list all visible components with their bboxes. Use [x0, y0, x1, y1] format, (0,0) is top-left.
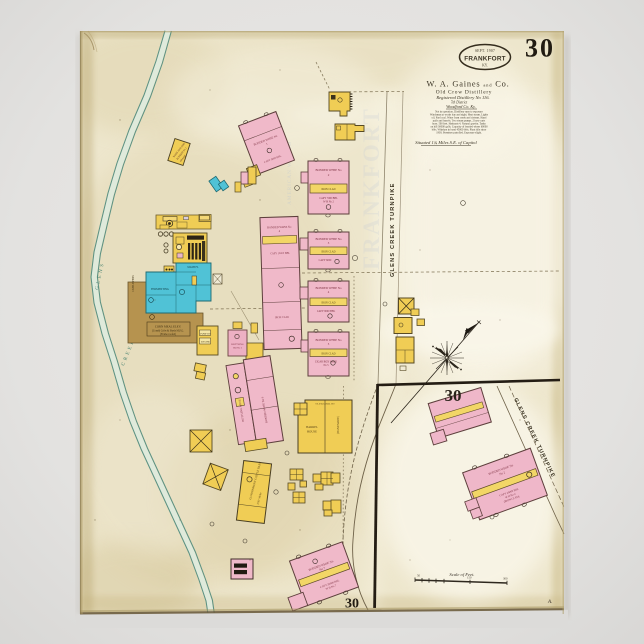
svg-text:50: 50	[417, 574, 421, 578]
svg-text:CAPY 8000 BBL: CAPY 8000 BBL	[317, 310, 336, 313]
svg-text:Registered Distillery No 116.: Registered Distillery No 116.	[435, 95, 489, 100]
svg-text:No 5: No 5	[323, 364, 329, 367]
svg-text:W H No 2: W H No 2	[323, 201, 334, 204]
svg-text:IRON CLAD: IRON CLAD	[321, 250, 335, 253]
svg-text:CORN MEAL ELEV.: CORN MEAL ELEV.	[155, 325, 182, 329]
svg-text:300: 300	[503, 577, 508, 581]
svg-text:A.: A.	[547, 600, 552, 605]
svg-text:CAPY 7000 BBL: CAPY 7000 BBL	[319, 197, 338, 200]
svg-text:(HAND MADE): (HAND MADE)	[337, 416, 340, 434]
svg-text:HOUSE: HOUSE	[307, 429, 317, 433]
svg-text:MASH FL: MASH FL	[187, 266, 199, 269]
svg-text:BONDED WHSE No: BONDED WHSE No	[315, 168, 342, 172]
svg-text:IRON CLAD: IRON CLAD	[321, 352, 335, 355]
svg-text:W. A. Gaines and Co.: W. A. Gaines and Co.	[426, 80, 509, 89]
svg-text:SEPT. 1907: SEPT. 1907	[475, 49, 495, 53]
svg-text:CAPY 6000: CAPY 6000	[319, 259, 332, 262]
svg-text:FERMENTING: FERMENTING	[151, 288, 169, 291]
svg-text:IRON CLAD: IRON CLAD	[321, 301, 335, 304]
svg-text:IRON CLAD: IRON CLAD	[275, 316, 289, 319]
svg-text:KY.: KY.	[482, 64, 488, 68]
svg-text:1903. Premises patrolled. Expo: 1903. Premises patrolled. Exposure sligh…	[436, 132, 482, 135]
svg-text:30: 30	[525, 34, 555, 63]
svg-text:PUMP HO: PUMP HO	[200, 333, 211, 336]
svg-text:OLD BARREL HO: OLD BARREL HO	[316, 403, 335, 406]
svg-text:GLENS CREEK TURNPIKE: GLENS CREEK TURNPIKE	[390, 182, 396, 277]
svg-text:IRON CLAD: IRON CLAD	[321, 188, 335, 191]
svg-text:ENGINE: ENGINE	[201, 341, 210, 344]
svg-text:HO No 1: HO No 1	[233, 346, 243, 349]
svg-text:Situated 1¾ Miles S.E. of Capi: Situated 1¾ Miles S.E. of Capitol	[415, 140, 477, 145]
svg-text:FRANKFORT: FRANKFORT	[464, 56, 506, 63]
svg-text:30: 30	[445, 386, 462, 405]
svg-text:BARREL: BARREL	[306, 425, 318, 429]
svg-text:CATTLE PENS: CATTLE PENS	[132, 275, 135, 292]
svg-text:CAPY 15000 BBL: CAPY 15000 BBL	[270, 252, 290, 256]
svg-text:(Frame roofed): (Frame roofed)	[160, 333, 176, 336]
svg-text:150: 150	[467, 576, 472, 580]
svg-text:Woodford Co. Ky.: Woodford Co. Ky.	[446, 104, 476, 109]
